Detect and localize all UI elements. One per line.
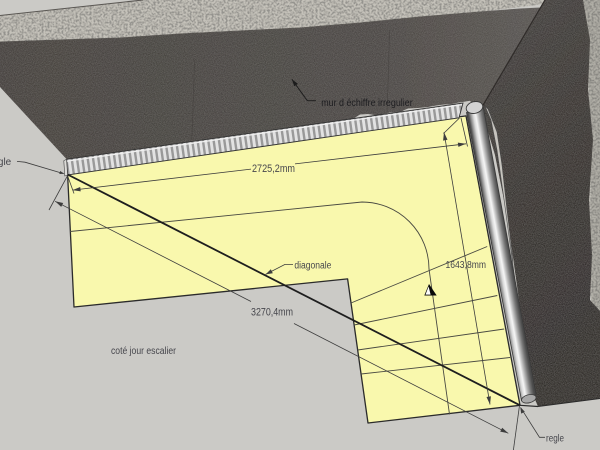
- svg-text:regle: regle: [0, 157, 12, 168]
- svg-text:diagonale: diagonale: [294, 260, 331, 271]
- svg-text:regle: regle: [546, 434, 564, 445]
- svg-text:3270,4mm: 3270,4mm: [251, 307, 293, 319]
- svg-text:1643,8mm: 1643,8mm: [446, 260, 487, 271]
- svg-text:2725,2mm: 2725,2mm: [252, 163, 295, 175]
- svg-text:coté jour escalier: coté jour escalier: [111, 346, 177, 357]
- svg-text:mur d échiffre irregulier: mur d échiffre irregulier: [321, 98, 413, 109]
